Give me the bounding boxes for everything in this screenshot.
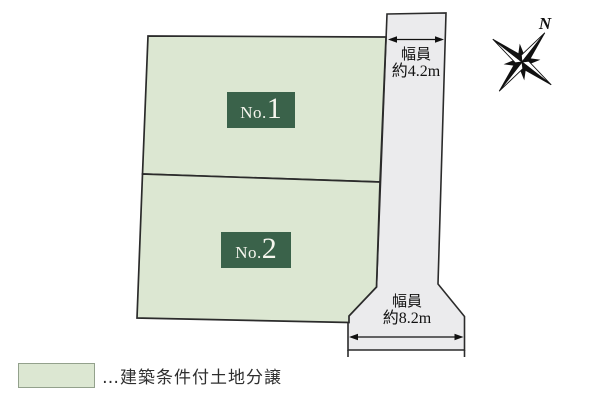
right-road-dimension-value: 約4.2m bbox=[370, 63, 462, 80]
bottom-road-dimension: 幅員 約8.2m bbox=[361, 294, 453, 327]
right-road-dimension-label: 幅員 bbox=[370, 47, 462, 63]
compass-rose-icon bbox=[470, 10, 574, 114]
compass-north-label: N bbox=[538, 14, 552, 33]
plot-2-label-number: 2 bbox=[262, 232, 277, 265]
legend: …建築条件付土地分譲 bbox=[18, 363, 282, 388]
site-plan-diagram: N No.1 No.2 幅員 約4.2m 幅員 約8.2m …建築条件付土地分譲 bbox=[0, 0, 600, 400]
plot-1-label-prefix: No. bbox=[240, 96, 267, 129]
plot-map-svg: N bbox=[0, 0, 600, 400]
bottom-road-dimension-value: 約8.2m bbox=[361, 310, 453, 327]
compass: N bbox=[470, 10, 574, 114]
bottom-road-dimension-label: 幅員 bbox=[361, 294, 453, 310]
legend-color-swatch bbox=[18, 363, 95, 388]
legend-label: …建築条件付土地分譲 bbox=[102, 363, 282, 388]
plot-1-label: No.1 bbox=[227, 92, 295, 128]
right-road-dimension: 幅員 約4.2m bbox=[370, 47, 462, 80]
plot-1-label-number: 1 bbox=[267, 92, 282, 125]
plot-2-label-prefix: No. bbox=[235, 236, 262, 269]
plot-2-label: No.2 bbox=[221, 232, 291, 268]
